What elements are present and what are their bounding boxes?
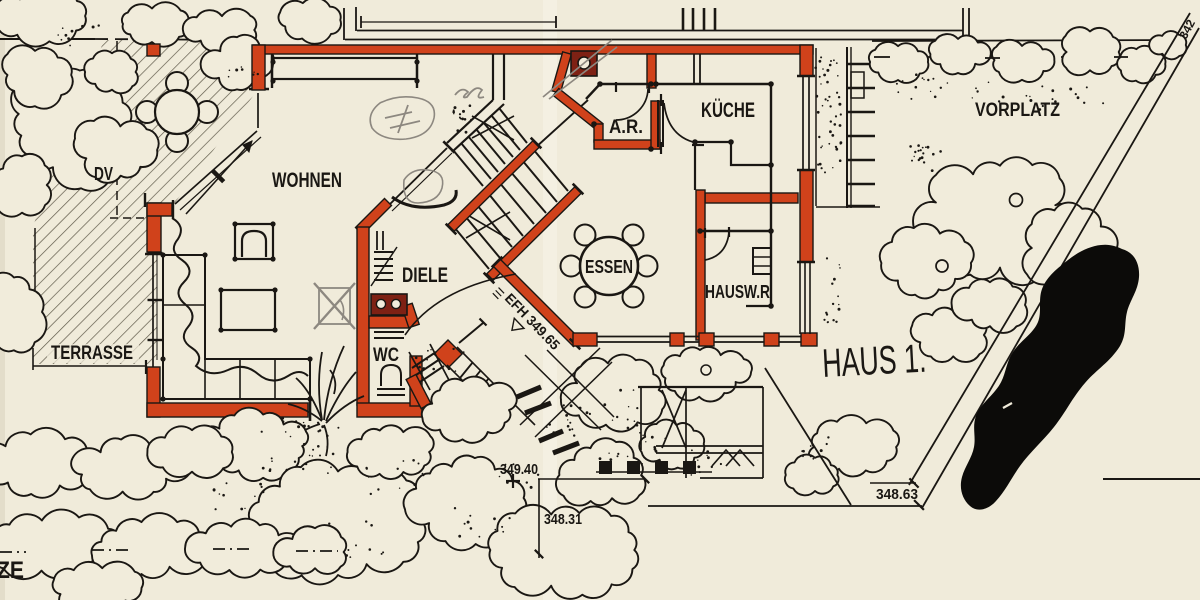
svg-text:348.63: 348.63 bbox=[876, 486, 918, 503]
svg-text:DIELE: DIELE bbox=[402, 264, 448, 287]
svg-text:349.40: 349.40 bbox=[500, 461, 538, 478]
svg-text:ESSEN: ESSEN bbox=[585, 256, 633, 277]
svg-text:VORPLATZ: VORPLATZ bbox=[975, 99, 1060, 121]
svg-text:A.R.: A.R. bbox=[609, 117, 643, 138]
svg-text:HAUS 1.: HAUS 1. bbox=[821, 337, 927, 386]
svg-text:TERRASSE: TERRASSE bbox=[51, 342, 133, 364]
svg-text:WOHNEN: WOHNEN bbox=[272, 169, 342, 192]
svg-text:KÜCHE: KÜCHE bbox=[701, 99, 755, 122]
svg-text:HAUSW.R: HAUSW.R bbox=[705, 282, 770, 302]
svg-text:348.31: 348.31 bbox=[544, 511, 582, 528]
svg-text:WC: WC bbox=[373, 345, 399, 366]
svg-text:DV: DV bbox=[94, 163, 113, 184]
svg-text:ZE: ZE bbox=[0, 557, 24, 584]
